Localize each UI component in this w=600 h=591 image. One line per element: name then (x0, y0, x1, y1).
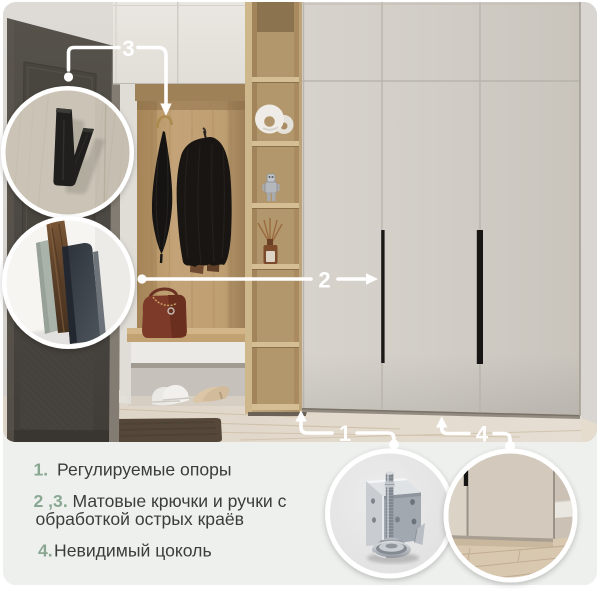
svg-text:1: 1 (339, 421, 351, 446)
svg-text:1.Регулируемые опоры: 1.Регулируемые опоры (34, 460, 232, 480)
svg-text:4: 4 (476, 422, 489, 447)
svg-text:2: 2 (318, 268, 330, 293)
svg-text:обработкой острых краёв: обработкой острых краёв (36, 509, 245, 529)
svg-text:3: 3 (122, 36, 134, 61)
svg-text:4.Невидимый цоколь: 4.Невидимый цоколь (38, 541, 212, 561)
